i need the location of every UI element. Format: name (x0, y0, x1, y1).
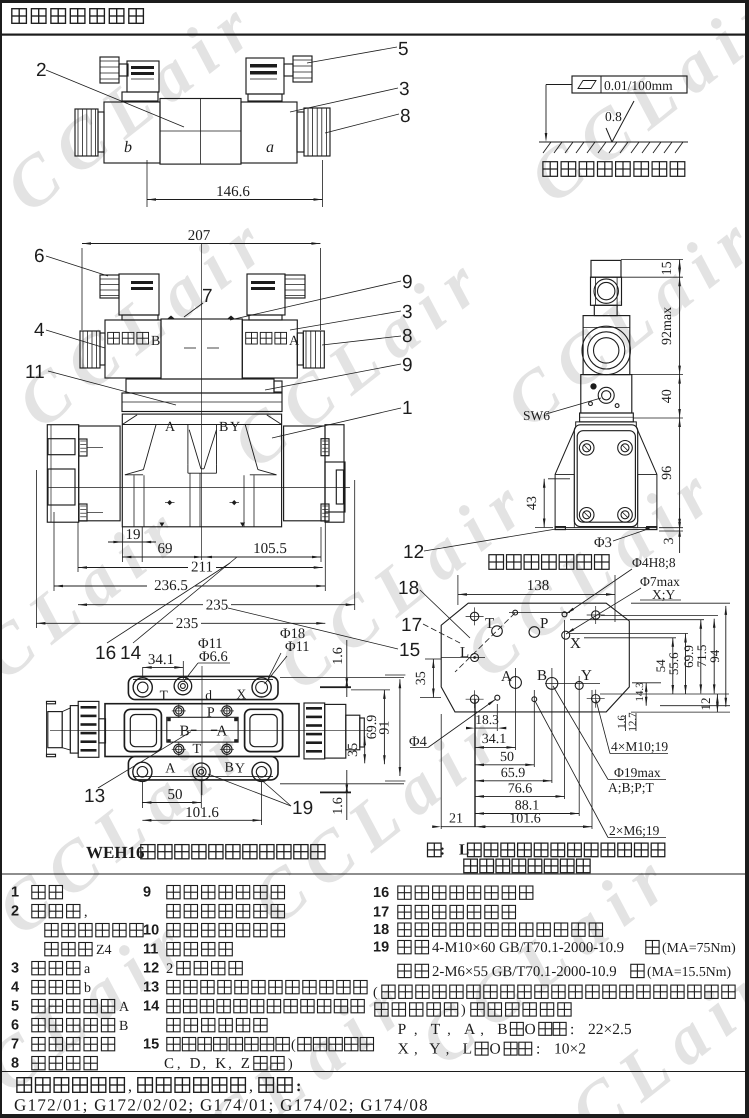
svg-text:Φ19max: Φ19max (614, 765, 661, 780)
svg-text:A: A (217, 724, 228, 740)
svg-text:19: 19 (126, 527, 141, 543)
svg-text:A: A (501, 669, 512, 685)
svg-text:22×2.5: 22×2.5 (588, 1021, 632, 1038)
svg-text:12.7: 12.7 (627, 712, 639, 732)
svg-text:O: O (490, 1041, 501, 1058)
svg-text:4-M10×60 GB/T70.1-2000-10.9: 4-M10×60 GB/T70.1-2000-10.9 (432, 940, 624, 956)
svg-text:19: 19 (292, 798, 313, 819)
svg-text:76.6: 76.6 (508, 782, 533, 797)
svg-text:A: A (119, 1000, 130, 1015)
svg-text:B: B (151, 334, 160, 349)
svg-text:4×M10;19: 4×M10;19 (611, 739, 668, 754)
svg-text:Φ3: Φ3 (594, 535, 612, 551)
svg-text:14.3: 14.3 (634, 682, 646, 702)
svg-text:7: 7 (11, 1037, 19, 1053)
svg-text:69: 69 (158, 541, 173, 557)
svg-text:1: 1 (11, 885, 19, 901)
svg-text:105.5: 105.5 (253, 541, 287, 557)
svg-text:d: d (205, 688, 212, 703)
svg-text::: : (440, 843, 445, 859)
svg-text:40: 40 (660, 389, 675, 403)
svg-text:,: , (128, 1078, 132, 1095)
svg-text:1.6: 1.6 (331, 647, 346, 665)
svg-text:B: B (225, 761, 234, 776)
svg-text:91: 91 (378, 721, 393, 735)
svg-text:9: 9 (143, 885, 151, 901)
svg-text:6: 6 (34, 246, 45, 267)
svg-text:(: ( (373, 986, 378, 1001)
svg-text:3: 3 (11, 961, 19, 977)
svg-text:): ) (288, 1057, 293, 1072)
svg-text:92max: 92max (660, 307, 675, 345)
svg-text:,: , (414, 1023, 418, 1038)
svg-text:A;B;P;T: A;B;P;T (608, 780, 655, 795)
svg-text:4: 4 (11, 980, 19, 996)
svg-text:,: , (480, 1023, 484, 1038)
svg-text:9: 9 (402, 355, 413, 376)
svg-text:10×2: 10×2 (554, 1041, 586, 1058)
svg-text:,: , (414, 1043, 418, 1058)
svg-text:15: 15 (399, 640, 420, 661)
svg-text:a: a (266, 139, 274, 156)
svg-text:A: A (289, 334, 300, 349)
svg-text:0.01/100mm: 0.01/100mm (604, 78, 673, 93)
svg-text:235: 235 (176, 616, 199, 632)
svg-text:G172/01; G172/02/02; G174/01;: G172/01; G172/02/02; G174/01; G174/02; G… (14, 1096, 429, 1115)
svg-text:0.8: 0.8 (605, 109, 622, 124)
svg-text:5: 5 (11, 999, 19, 1015)
svg-text:9: 9 (402, 272, 413, 293)
svg-text:(MА=75Nm): (MА=75Nm) (662, 940, 736, 955)
svg-text:(MА=15.5Nm): (MА=15.5Nm) (647, 964, 731, 979)
svg-text:50: 50 (168, 787, 183, 803)
svg-text:A: A (464, 1021, 476, 1038)
svg-text:7: 7 (202, 286, 213, 307)
svg-text:B: B (219, 420, 228, 435)
svg-text:,: , (249, 1078, 253, 1095)
svg-text:8: 8 (11, 1056, 19, 1072)
svg-text::: : (570, 1021, 574, 1038)
svg-text:,: , (177, 1057, 181, 1072)
svg-text:A: A (165, 762, 176, 777)
svg-text:17: 17 (373, 904, 389, 920)
svg-text:13: 13 (84, 786, 105, 807)
svg-text:101.6: 101.6 (509, 812, 541, 827)
svg-text:211: 211 (191, 560, 213, 576)
svg-text:34.1: 34.1 (482, 732, 507, 747)
svg-text:101.6: 101.6 (185, 805, 219, 821)
svg-text:): ) (461, 1003, 466, 1018)
svg-text:P: P (540, 616, 548, 632)
svg-text::: : (536, 1041, 540, 1058)
svg-text:L: L (460, 645, 469, 661)
svg-text:L: L (463, 1041, 472, 1058)
svg-text:16: 16 (95, 643, 116, 664)
svg-text:50: 50 (500, 750, 514, 765)
svg-text:T: T (193, 742, 202, 757)
svg-text:B: B (497, 1021, 507, 1038)
svg-text:,: , (447, 1023, 451, 1038)
svg-text:65.9: 65.9 (501, 766, 526, 781)
svg-text:11: 11 (143, 942, 158, 958)
svg-text:14: 14 (120, 643, 142, 664)
svg-text:11: 11 (25, 362, 45, 383)
svg-text:5: 5 (398, 39, 409, 60)
svg-text:18: 18 (373, 922, 389, 938)
svg-text:2: 2 (36, 60, 47, 81)
svg-text:235: 235 (206, 598, 229, 614)
svg-text:146.6: 146.6 (216, 184, 250, 200)
svg-text:A: A (165, 420, 176, 435)
svg-text:8: 8 (402, 326, 413, 347)
svg-text:6: 6 (11, 1018, 19, 1034)
svg-text:P: P (207, 705, 215, 720)
svg-text:18: 18 (398, 578, 419, 599)
svg-text:X: X (570, 636, 581, 652)
svg-text:b: b (124, 139, 132, 156)
svg-text:B: B (119, 1019, 128, 1034)
svg-text:55.6: 55.6 (666, 652, 681, 675)
svg-text:1: 1 (402, 398, 413, 419)
svg-text:15: 15 (660, 261, 675, 275)
svg-text:21: 21 (449, 812, 463, 827)
svg-text:1.6: 1.6 (331, 797, 346, 815)
svg-text:WEH16: WEH16 (86, 843, 145, 862)
svg-text:D: D (190, 1056, 201, 1072)
svg-text:18.3: 18.3 (475, 712, 499, 727)
svg-text:236.5: 236.5 (154, 578, 188, 594)
svg-text:19: 19 (373, 940, 389, 956)
svg-text:8: 8 (400, 106, 411, 127)
svg-text:94: 94 (707, 649, 722, 663)
svg-text:13: 13 (143, 980, 159, 996)
svg-text:a: a (84, 962, 91, 977)
svg-text:12: 12 (698, 698, 713, 711)
svg-text:Y: Y (581, 668, 592, 684)
svg-text:SW6: SW6 (523, 408, 550, 423)
svg-text:15: 15 (143, 1037, 159, 1053)
svg-text:12: 12 (403, 542, 424, 563)
svg-text:,: , (228, 1057, 232, 1072)
svg-text:Y: Y (230, 420, 240, 435)
svg-text:2-M6×55 GB/T70.1-2000-10.9: 2-M6×55 GB/T70.1-2000-10.9 (432, 964, 617, 980)
svg-text:10: 10 (143, 923, 159, 939)
svg-text:X: X (398, 1041, 409, 1058)
svg-text:,: , (203, 1057, 207, 1072)
svg-text:Φ11: Φ11 (285, 639, 310, 655)
svg-text:96: 96 (660, 466, 675, 480)
svg-text:4: 4 (34, 320, 45, 341)
svg-text:Φ4H8;8: Φ4H8;8 (632, 555, 676, 570)
svg-text:34.1: 34.1 (148, 652, 174, 668)
svg-text:16: 16 (373, 885, 389, 901)
svg-text:,: , (446, 1043, 450, 1058)
svg-text:138: 138 (527, 578, 550, 594)
svg-text::: : (296, 1078, 301, 1095)
svg-text:3: 3 (399, 79, 410, 100)
svg-text:X: X (237, 687, 247, 702)
svg-text:b: b (84, 981, 91, 996)
svg-text:T: T (485, 616, 494, 632)
svg-text:2: 2 (166, 961, 173, 977)
svg-text:207: 207 (188, 228, 211, 244)
svg-text:3: 3 (402, 302, 413, 323)
svg-text:35: 35 (346, 743, 361, 757)
svg-text:12: 12 (143, 961, 159, 977)
svg-text:K: K (215, 1056, 226, 1072)
svg-text:3: 3 (662, 538, 677, 545)
svg-text:Z4: Z4 (96, 943, 112, 958)
svg-text:17: 17 (401, 615, 422, 636)
svg-text:T: T (160, 688, 169, 703)
svg-text:(: ( (291, 1038, 296, 1053)
svg-text:O: O (525, 1021, 536, 1038)
svg-text:43: 43 (525, 496, 540, 510)
svg-text:Z: Z (241, 1056, 250, 1072)
svg-text:Y: Y (235, 762, 245, 777)
svg-text:C: C (164, 1056, 174, 1072)
svg-text:P: P (398, 1021, 407, 1038)
svg-text:14: 14 (143, 999, 159, 1015)
svg-text:Y: Y (429, 1041, 440, 1058)
svg-text:35: 35 (414, 671, 429, 685)
svg-text:2×M6;19: 2×M6;19 (609, 823, 660, 838)
svg-text:B: B (537, 668, 547, 684)
svg-text:2: 2 (11, 904, 19, 920)
svg-text:T: T (431, 1021, 441, 1038)
svg-text:,: , (84, 905, 88, 920)
svg-text:B: B (180, 724, 190, 740)
